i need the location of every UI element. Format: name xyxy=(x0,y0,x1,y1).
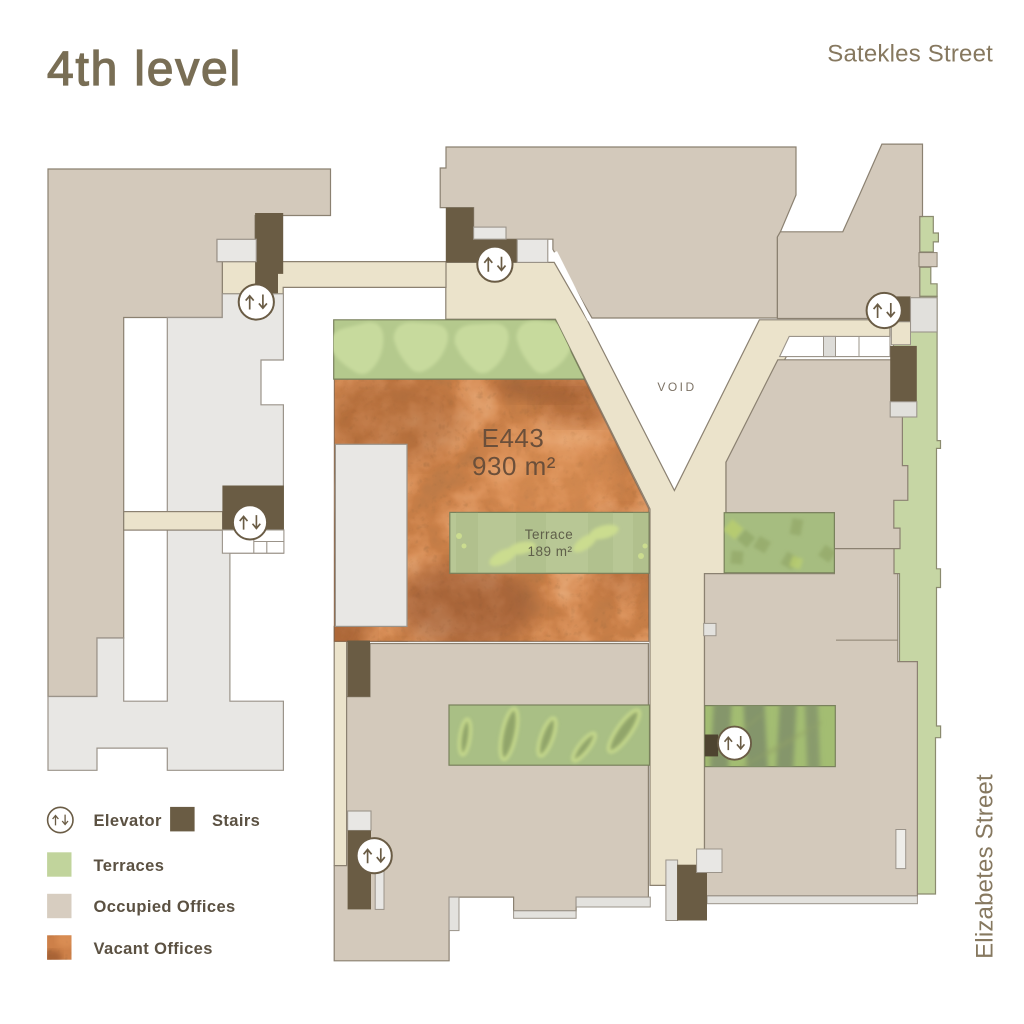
svg-text:Elevator: Elevator xyxy=(94,812,162,830)
svg-text:4th level: 4th level xyxy=(47,43,242,96)
svg-text:Terraces: Terraces xyxy=(94,857,165,875)
svg-text:E443: E443 xyxy=(482,423,545,453)
svg-text:VOID: VOID xyxy=(657,380,696,394)
svg-text:Satekles Street: Satekles Street xyxy=(827,41,993,68)
svg-text:930 m²: 930 m² xyxy=(472,451,556,481)
svg-text:Occupied Offices: Occupied Offices xyxy=(94,898,236,916)
svg-text:Stairs: Stairs xyxy=(212,812,260,830)
svg-text:Vacant Offices: Vacant Offices xyxy=(94,940,213,958)
svg-text:Terrace: Terrace xyxy=(525,527,574,542)
svg-text:Elizabetes Street: Elizabetes Street xyxy=(972,774,999,959)
svg-text:189 m²: 189 m² xyxy=(527,544,572,559)
